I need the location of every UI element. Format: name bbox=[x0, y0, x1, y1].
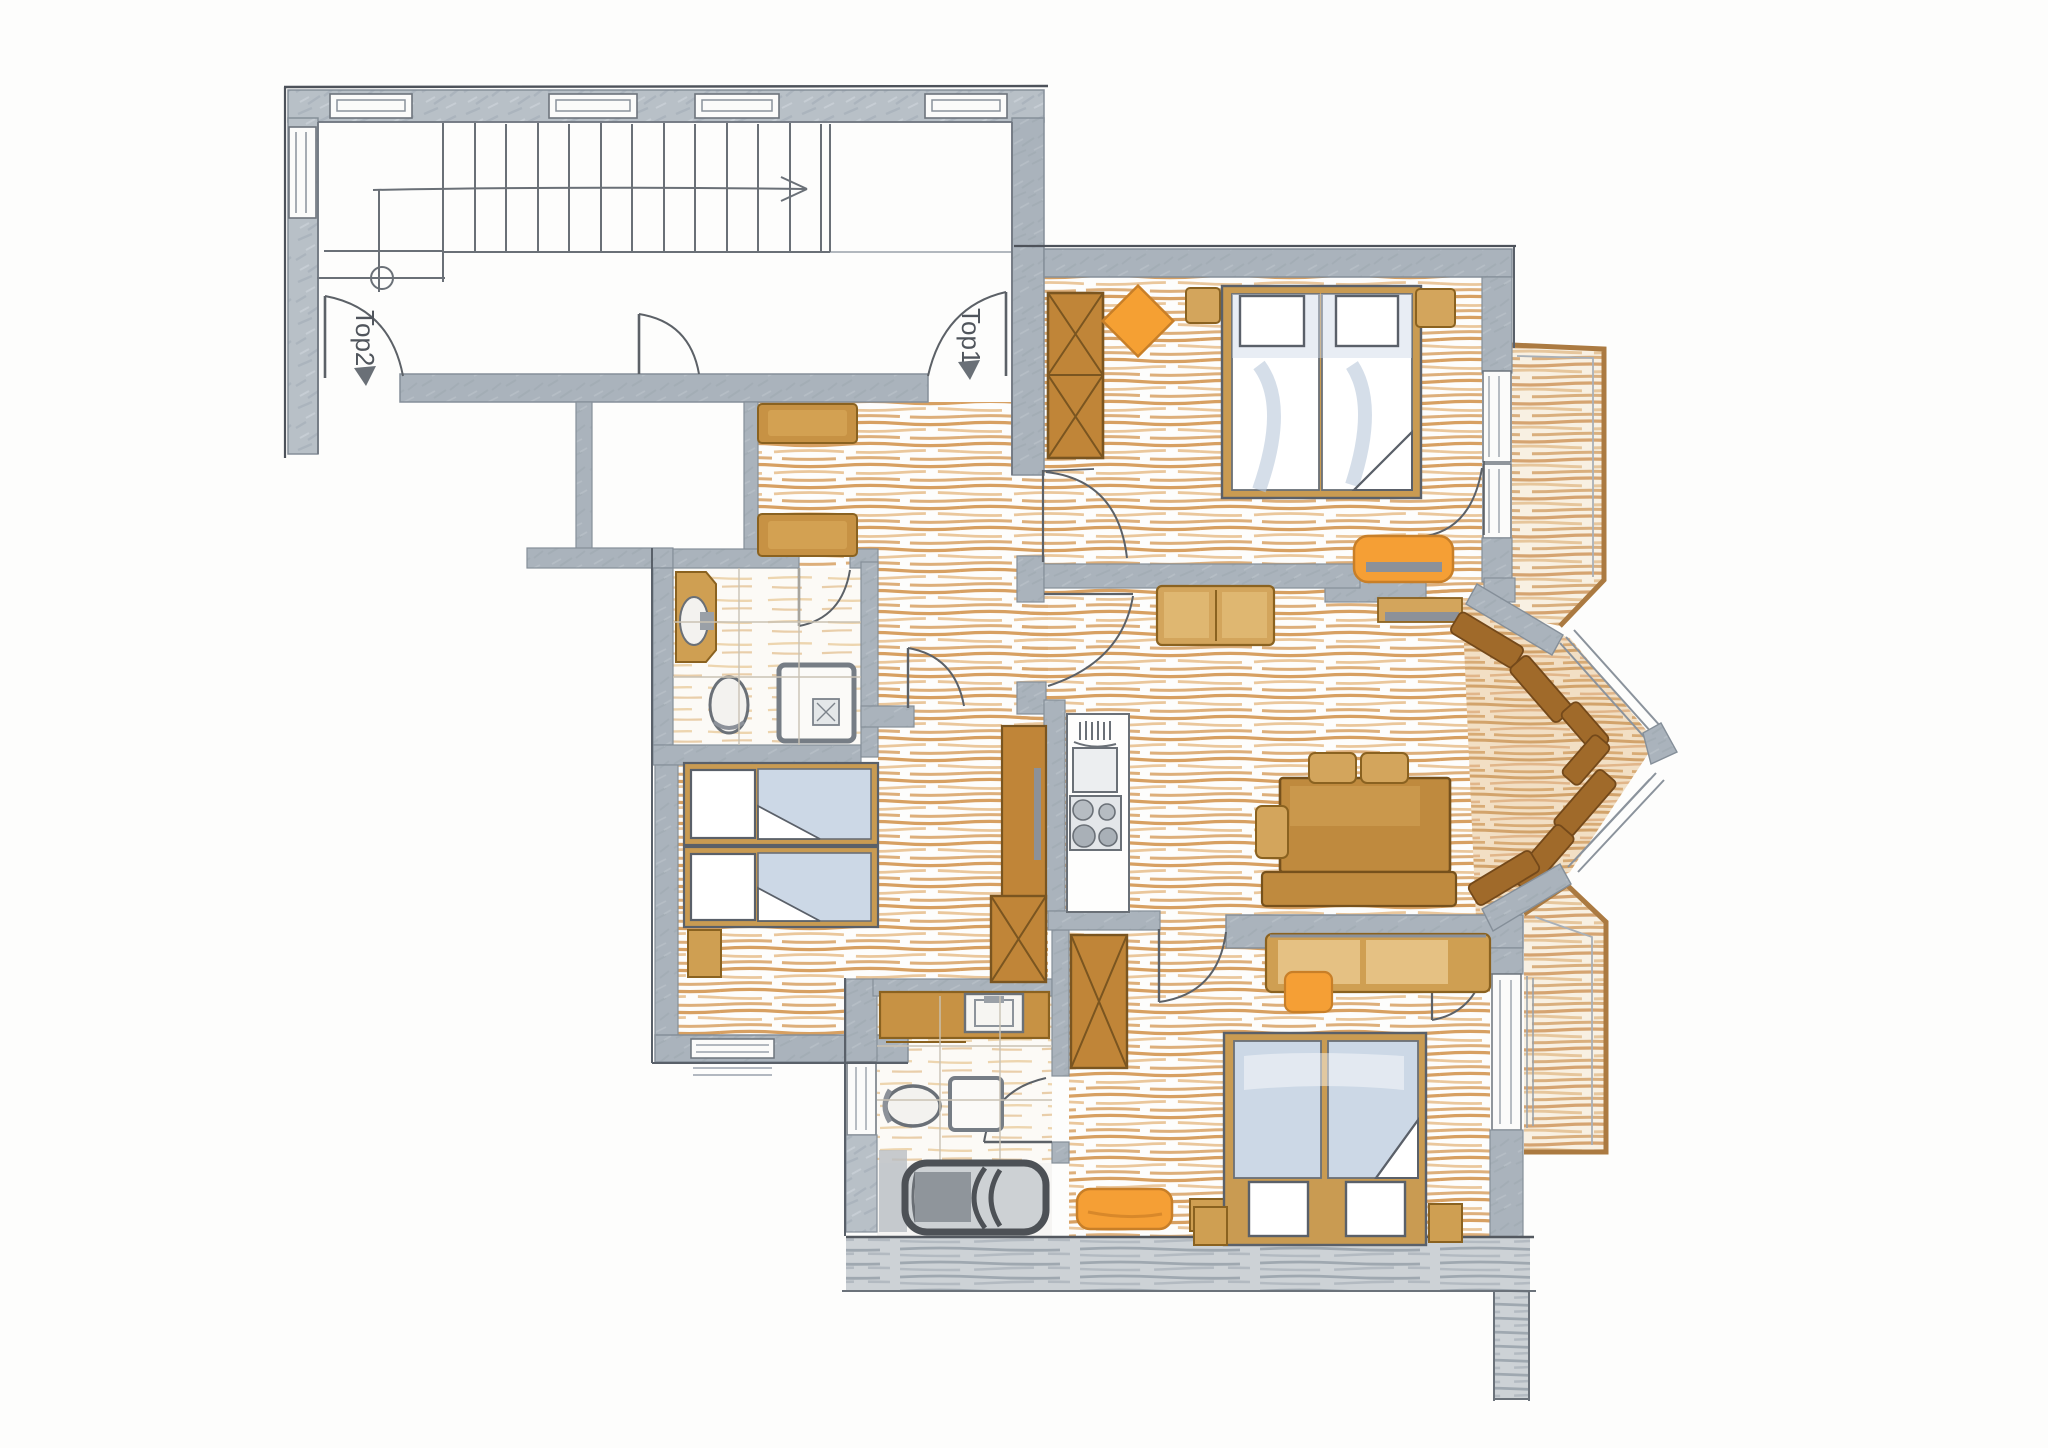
svg-text:Top1: Top1 bbox=[956, 308, 986, 364]
svg-text:Top2: Top2 bbox=[350, 310, 380, 366]
